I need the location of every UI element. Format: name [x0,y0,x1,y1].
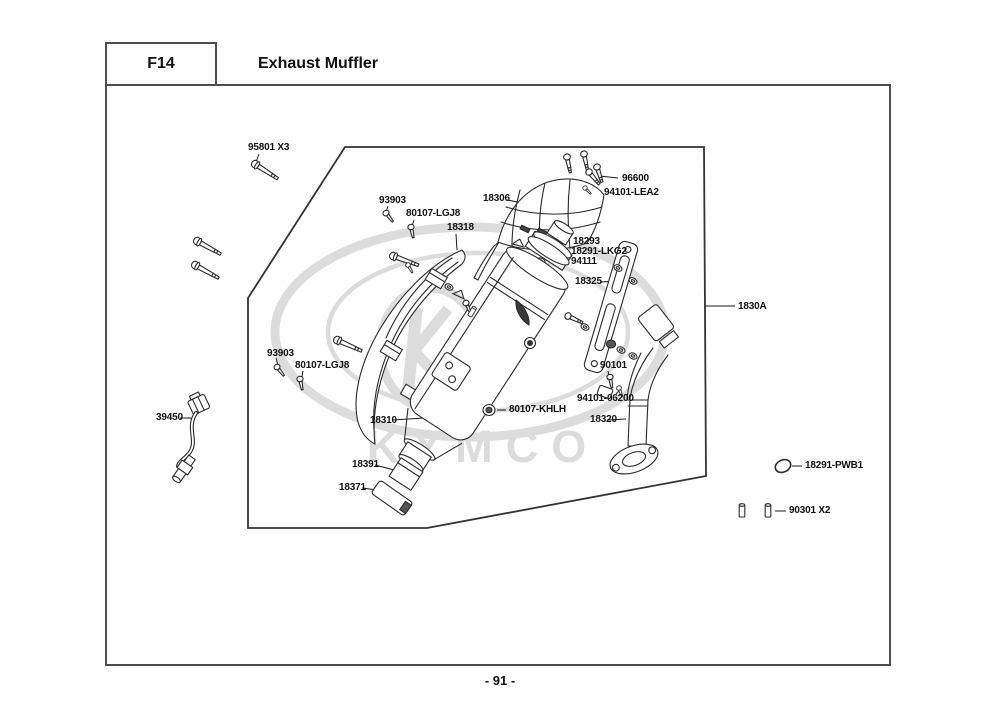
part-label-93903-upper: 93903 [379,196,406,206]
part-label-94101-06200: 94101-06200 [577,394,634,404]
o-ring-drawing [773,457,793,475]
part-label-1830a: 1830A [738,302,766,312]
lower-bolt-drawing [332,335,363,355]
part-label-93903-lower: 93903 [267,349,294,359]
cap-nut-1 [739,504,745,517]
part-label-18291-pwb1: 18291-PWB1 [805,461,863,471]
part-label-80107-lgj8-lower: 80107-LGJ8 [295,361,349,371]
part-label-96600: 96600 [622,174,649,184]
part-label-18310: 18310 [370,416,397,426]
part-label-90301: 90301 X2 [789,506,830,516]
bolt-80107-khlh [483,405,495,416]
part-label-80107-khlh: 80107-KHLH [509,405,566,415]
part-label-18391: 18391 [352,460,379,470]
part-label-80107-lgj8-upper: 80107-LGJ8 [406,209,460,219]
oxygen-sensor-drawing [170,390,210,485]
part-label-18318: 18318 [447,223,474,233]
part-label-39450: 39450 [156,413,183,423]
part-label-94111: 94111 [571,257,597,267]
screw-90101 [606,374,614,389]
mount-bolts-drawing [190,159,280,282]
part-label-95801: 95801 X3 [248,143,289,153]
part-label-18306: 18306 [483,194,510,204]
cap-nut-2 [765,504,771,517]
part-label-18325: 18325 [575,277,602,287]
part-label-18320: 18320 [590,415,617,425]
part-label-94101-lea2: 94101-LEA2 [604,188,659,198]
part-label-18371: 18371 [339,483,366,493]
exploded-parts-diagram: KYMCO [0,0,1000,707]
part-label-90101: 90101 [600,361,627,371]
screw-93903-upper [382,209,395,224]
